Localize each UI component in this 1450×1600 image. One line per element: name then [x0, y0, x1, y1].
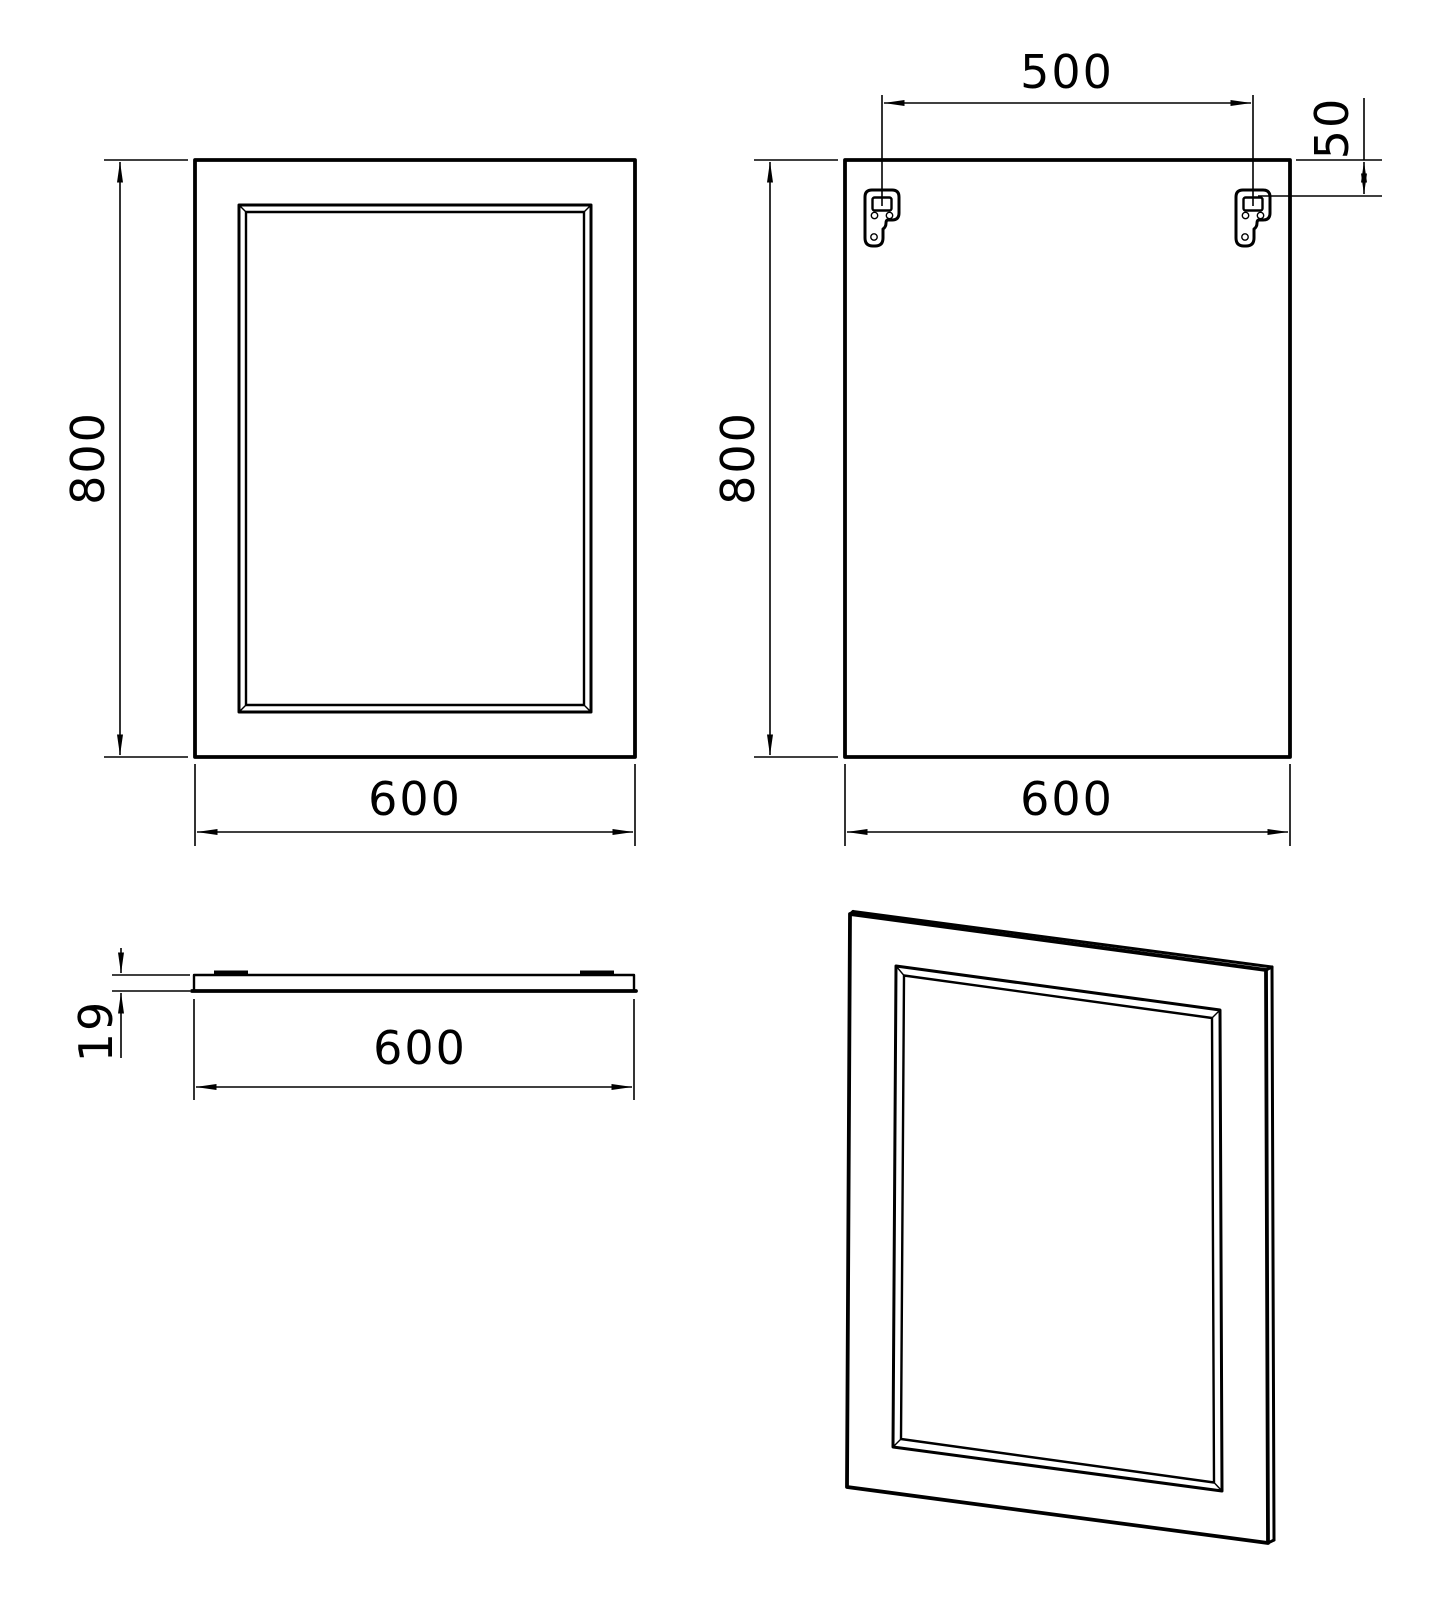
perspective-view	[847, 912, 1274, 1544]
bracket-spacing-label: 500	[1020, 45, 1114, 99]
back-height-label: 800	[711, 411, 765, 505]
front-width-dimension: 600	[195, 764, 635, 846]
front-height-label: 800	[61, 411, 115, 505]
front-view: 800 600	[61, 160, 635, 846]
front-frame-bevel-inner	[246, 212, 584, 705]
perspective-frame-bevel-outer	[893, 966, 1222, 1491]
profile-width-dimension: 600	[194, 999, 634, 1100]
back-panel-outline	[845, 160, 1290, 757]
profile-thickness-dimension: 19	[69, 948, 190, 1062]
technical-drawing: 800 600	[0, 0, 1450, 1600]
front-frame-bevel-outer	[239, 205, 591, 712]
top-profile-view: 19 600	[69, 948, 636, 1100]
back-width-label: 600	[1020, 772, 1114, 826]
front-height-dimension: 800	[61, 160, 188, 757]
front-panel-outline	[195, 160, 635, 757]
profile-panel-outline	[194, 975, 634, 991]
profile-bracket-tab-right	[580, 971, 614, 976]
back-view: 500 50 800 600	[711, 45, 1382, 846]
perspective-frame-bevel-inner	[901, 976, 1214, 1483]
profile-width-label: 600	[373, 1021, 467, 1075]
profile-thickness-label: 19	[69, 1000, 123, 1063]
profile-bracket-tab-left	[214, 971, 248, 976]
back-width-dimension: 600	[845, 764, 1290, 846]
front-width-label: 600	[368, 772, 462, 826]
perspective-bevel-corner-lines	[893, 966, 1222, 1491]
bracket-offset-label: 50	[1305, 97, 1359, 160]
bracket-offset-dimension: 50	[1258, 97, 1382, 196]
front-bevel-corner-lines	[239, 205, 591, 712]
bracket-spacing-dimension: 500	[882, 45, 1253, 206]
back-height-dimension: 800	[711, 160, 838, 757]
drawing-sheet: 800 600	[0, 0, 1450, 1600]
